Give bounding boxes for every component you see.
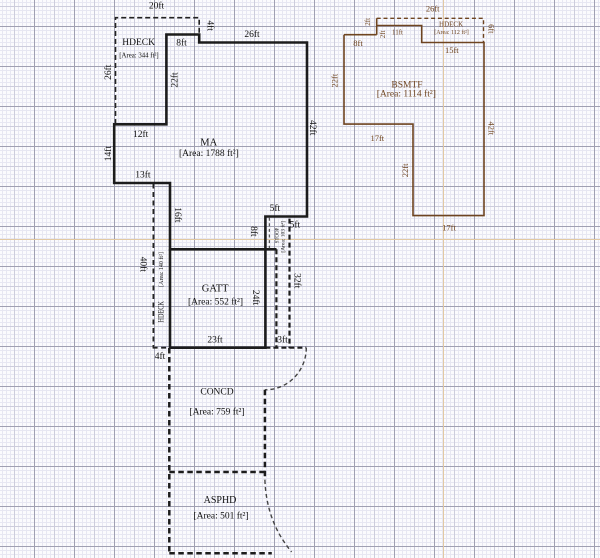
svg-text:2ft: 2ft — [379, 30, 387, 38]
svg-text:4ft: 4ft — [155, 351, 166, 362]
svg-text:42ft: 42ft — [486, 121, 496, 135]
svg-text:8ft: 8ft — [248, 226, 259, 237]
svg-text:40ft: 40ft — [138, 257, 149, 273]
svg-text:[Area: 344 ft²]: [Area: 344 ft²] — [119, 53, 158, 60]
svg-text:HDECK: HDECK — [157, 301, 166, 323]
svg-text:8ft: 8ft — [176, 38, 187, 49]
svg-text:23ft: 23ft — [207, 334, 223, 345]
svg-text:[Area: 1114 ft²]: [Area: 1114 ft²] — [377, 89, 436, 100]
svg-text:[Area: 552 ft²]: [Area: 552 ft²] — [188, 296, 243, 307]
svg-text:5ft: 5ft — [290, 219, 301, 230]
svg-text:4ft: 4ft — [205, 20, 216, 31]
svg-text:42ft: 42ft — [307, 120, 318, 136]
svg-text:26ft: 26ft — [426, 4, 440, 14]
svg-text:GATT: GATT — [202, 283, 229, 294]
svg-text:20ft: 20ft — [149, 0, 165, 11]
svg-text:HDECK: HDECK — [122, 38, 155, 48]
svg-text:17ft: 17ft — [370, 133, 384, 143]
svg-text:32ft: 32ft — [292, 273, 303, 289]
svg-text:22ft: 22ft — [170, 72, 181, 88]
svg-text:[Area: 1788 ft²]: [Area: 1788 ft²] — [179, 148, 239, 159]
svg-text:16ft: 16ft — [172, 207, 183, 223]
svg-text:[Area: 140 ft²]: [Area: 140 ft²] — [158, 252, 165, 287]
svg-text:5ft: 5ft — [270, 203, 281, 214]
svg-text:14ft: 14ft — [103, 146, 114, 162]
svg-text:MA: MA — [200, 137, 217, 148]
svg-text:CONCD: CONCD — [200, 387, 233, 397]
svg-text:[Area: 501 ft²]: [Area: 501 ft²] — [193, 511, 248, 522]
svg-text:11ft: 11ft — [392, 28, 403, 36]
svg-text:[Area: 103 ft²]: [Area: 103 ft²] — [280, 221, 287, 253]
svg-text:26ft: 26ft — [244, 29, 260, 40]
svg-text:[Area: 759 ft²]: [Area: 759 ft²] — [189, 406, 244, 417]
svg-text:15ft: 15ft — [445, 45, 459, 55]
svg-text:22ft: 22ft — [400, 163, 410, 177]
svg-text:26ft: 26ft — [103, 64, 114, 80]
svg-text:24ft: 24ft — [250, 290, 261, 306]
svg-text:12ft: 12ft — [133, 129, 149, 140]
svg-text:ASPHD: ASPHD — [204, 495, 237, 506]
svg-text:17ft: 17ft — [442, 223, 456, 233]
svg-text:22ft: 22ft — [330, 73, 340, 87]
svg-text:8ft: 8ft — [353, 38, 363, 48]
svg-text:6ft: 6ft — [486, 24, 496, 34]
svg-text:3ft: 3ft — [277, 334, 288, 345]
svg-text:2ft: 2ft — [364, 18, 372, 26]
svg-text:HDECK: HDECK — [439, 21, 463, 29]
svg-text:13ft: 13ft — [135, 170, 151, 181]
svg-text:[Area: 112 ft²]: [Area: 112 ft²] — [434, 29, 469, 36]
